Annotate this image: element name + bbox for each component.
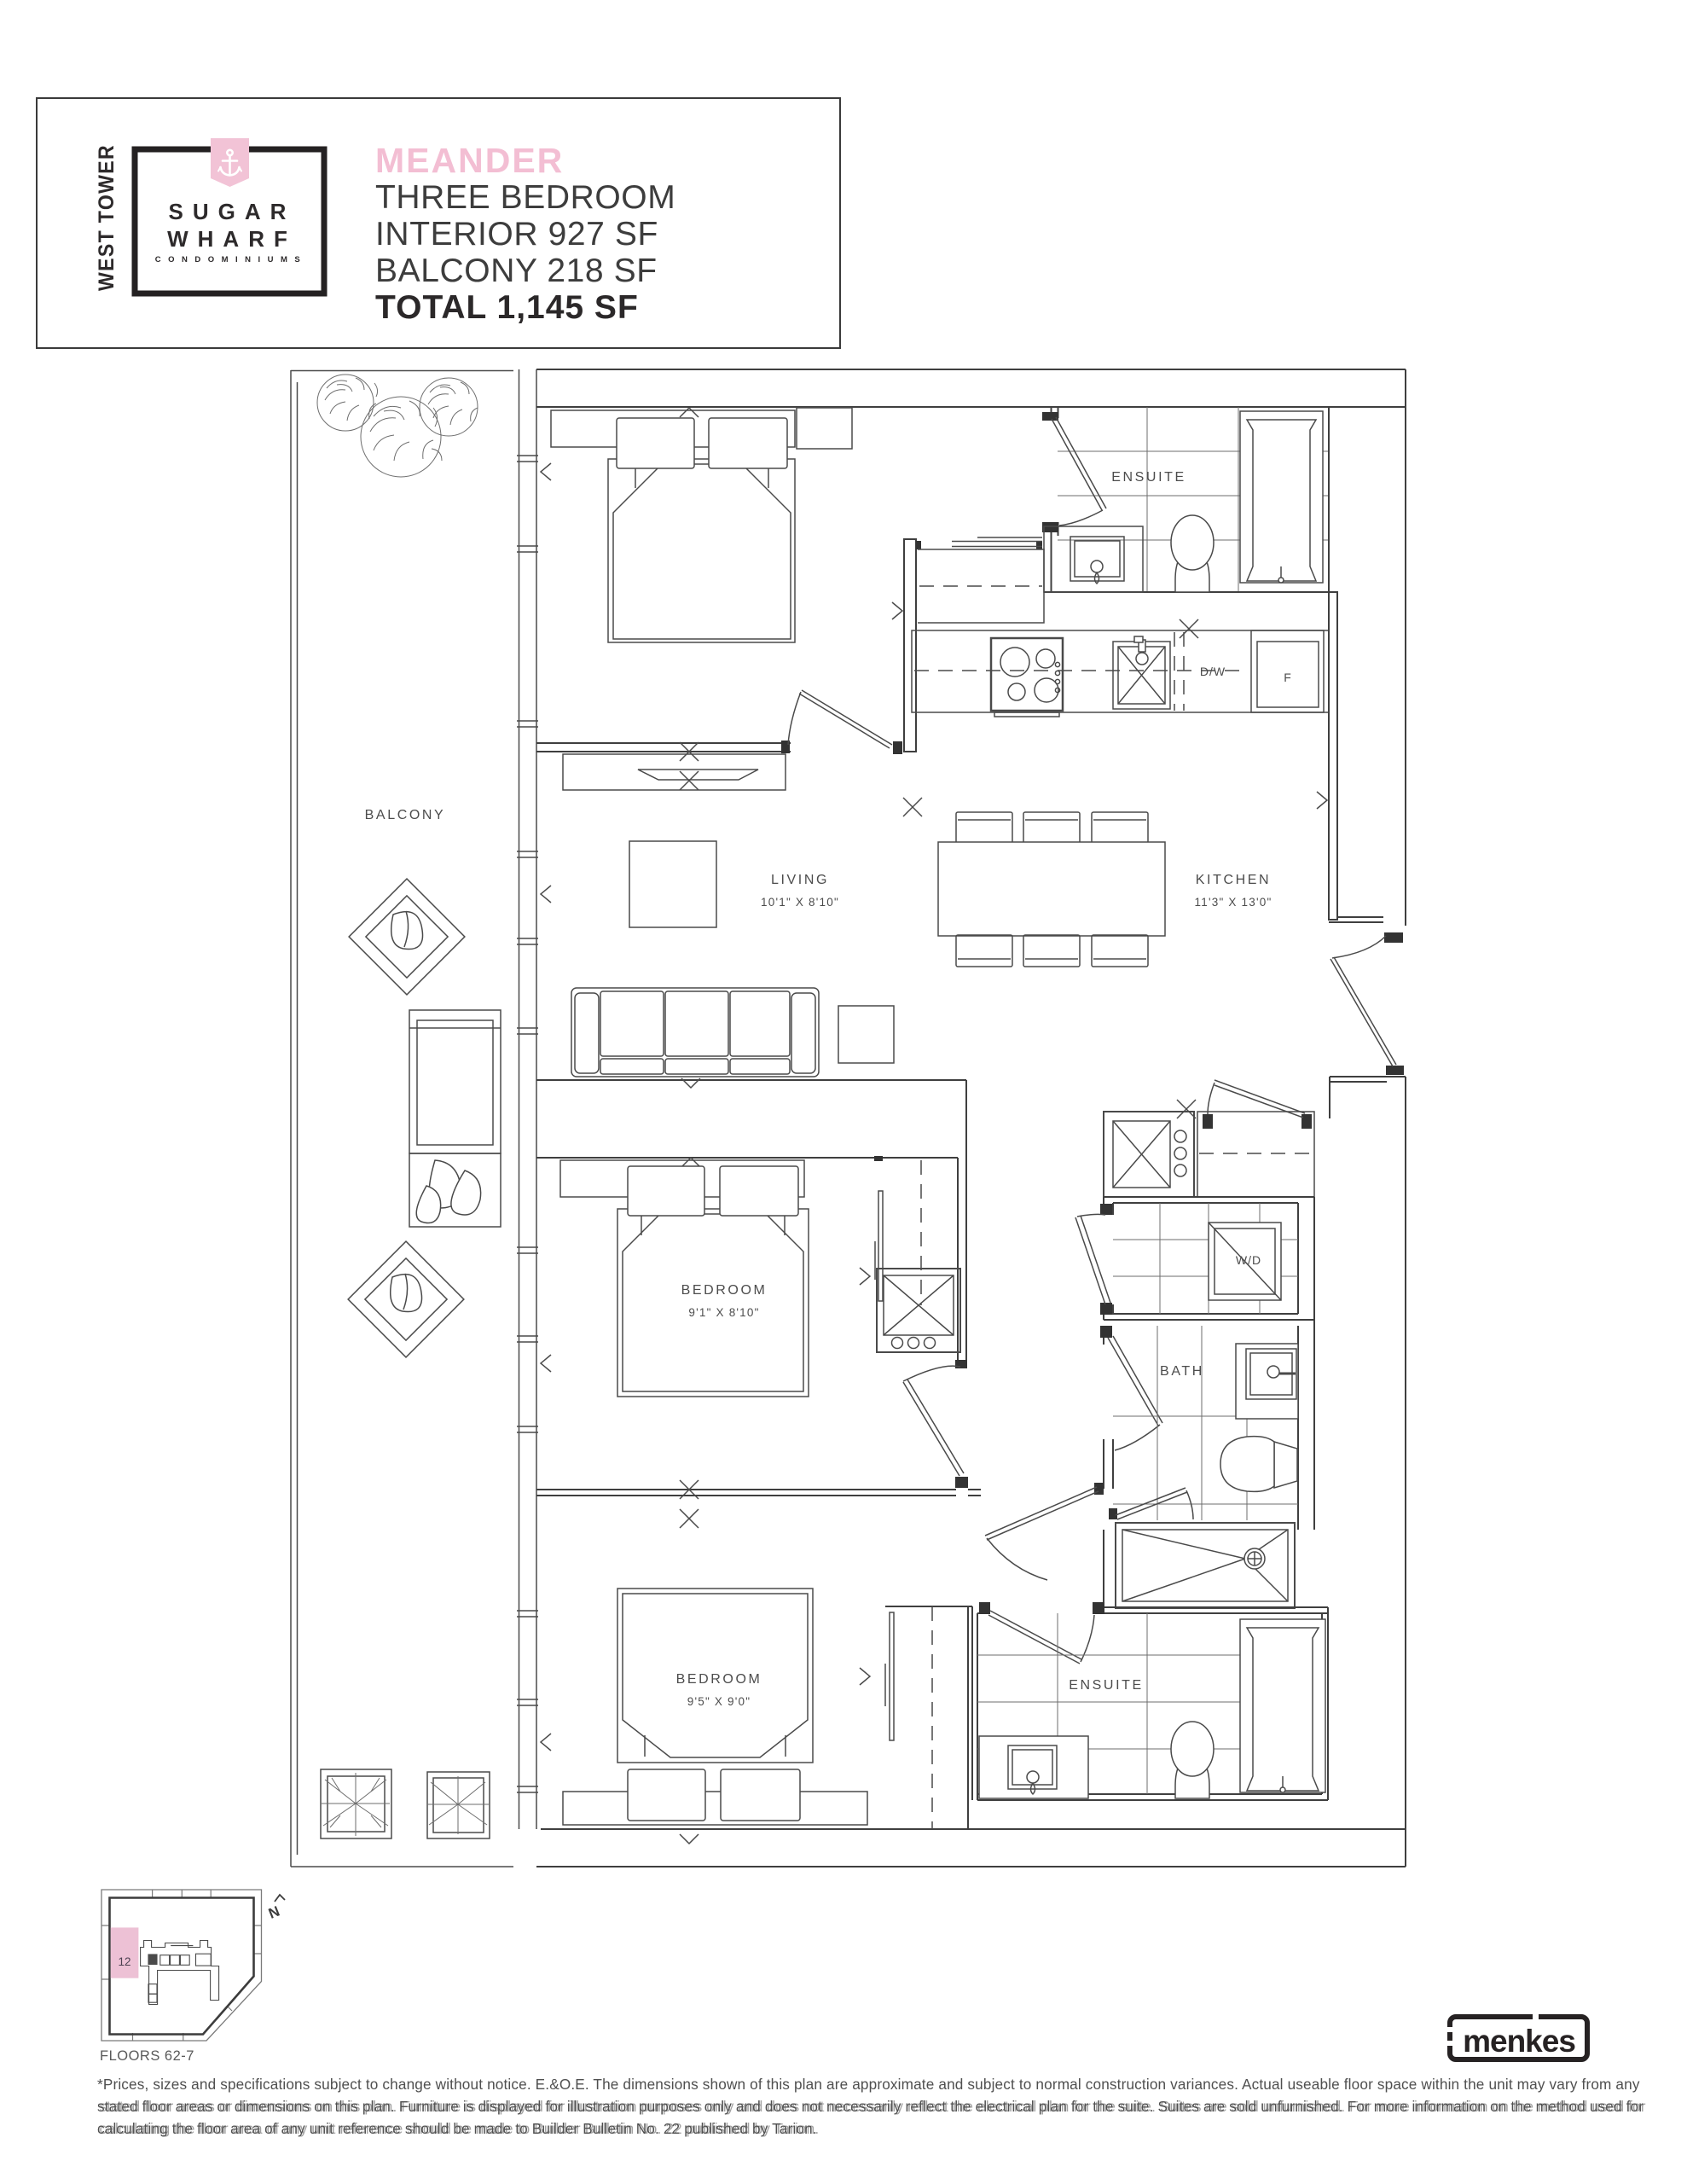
svg-text:12: 12 [118, 1955, 130, 1968]
svg-text:D/W: D/W [1200, 665, 1226, 678]
svg-text:9'5" X 9'0": 9'5" X 9'0" [687, 1695, 751, 1708]
svg-text:menkes: menkes [1463, 2024, 1575, 2059]
svg-text:INTERIOR 927 SF: INTERIOR 927 SF [375, 216, 658, 253]
svg-text:MEANDER: MEANDER [375, 141, 564, 180]
svg-text:BALCONY: BALCONY [365, 808, 446, 822]
svg-text:TOTAL 1,145 SF: TOTAL 1,145 SF [375, 289, 639, 326]
svg-text:F: F [1284, 671, 1292, 684]
svg-text:SUGAR: SUGAR [169, 199, 296, 224]
svg-text:FLOORS 62-7: FLOORS 62-7 [100, 2048, 194, 2064]
svg-text:WHARF: WHARF [167, 226, 297, 252]
svg-text:ENSUITE: ENSUITE [1111, 470, 1186, 485]
svg-text:calculating the floor area of: calculating the floor area of any unit r… [97, 2120, 817, 2137]
svg-text:10'1" X 8'10": 10'1" X 8'10" [761, 896, 839, 909]
svg-text:WEST TOWER: WEST TOWER [95, 144, 119, 291]
svg-text:BATH: BATH [1160, 1364, 1204, 1379]
svg-text:ENSUITE: ENSUITE [1069, 1678, 1144, 1693]
svg-text:LIVING: LIVING [771, 873, 829, 887]
svg-text:KITCHEN: KITCHEN [1196, 873, 1271, 887]
svg-text:11'3" X 13'0": 11'3" X 13'0" [1195, 896, 1272, 909]
svg-text:W/D: W/D [1236, 1253, 1261, 1267]
svg-text:THREE BEDROOM: THREE BEDROOM [375, 179, 675, 216]
svg-text:BEDROOM: BEDROOM [676, 1672, 762, 1687]
svg-text:BEDROOM: BEDROOM [681, 1283, 768, 1298]
svg-text:*Prices, sizes and specificati: *Prices, sizes and specifications subjec… [97, 2076, 1640, 2093]
svg-text:9'1" X 8'10": 9'1" X 8'10" [688, 1306, 759, 1319]
svg-text:CONDOMINIUMS: CONDOMINIUMS [155, 255, 308, 264]
svg-text:BALCONY 218 SF: BALCONY 218 SF [375, 253, 658, 289]
svg-text:stated floor areas or dimensio: stated floor areas or dimensions on this… [97, 2098, 1644, 2115]
